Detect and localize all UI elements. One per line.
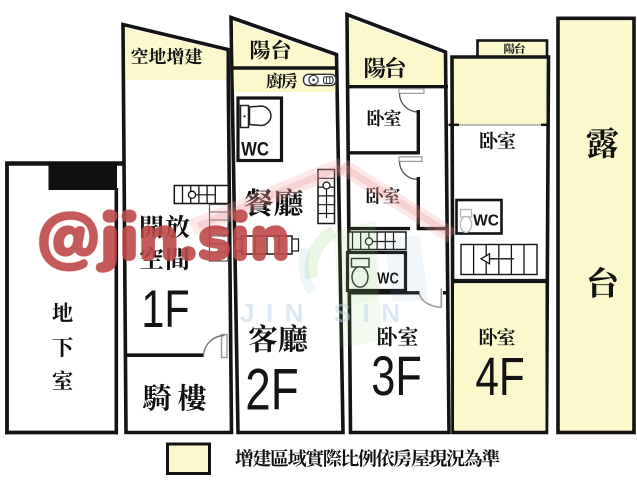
- svg-text:2F: 2F: [245, 358, 298, 422]
- svg-text:3F: 3F: [371, 345, 422, 407]
- svg-text:WC: WC: [241, 139, 269, 160]
- svg-text:JIN SIN: JIN SIN: [240, 298, 412, 328]
- svg-text:4F: 4F: [475, 347, 524, 407]
- svg-text:1F: 1F: [141, 280, 189, 339]
- svg-text:WC: WC: [473, 213, 499, 230]
